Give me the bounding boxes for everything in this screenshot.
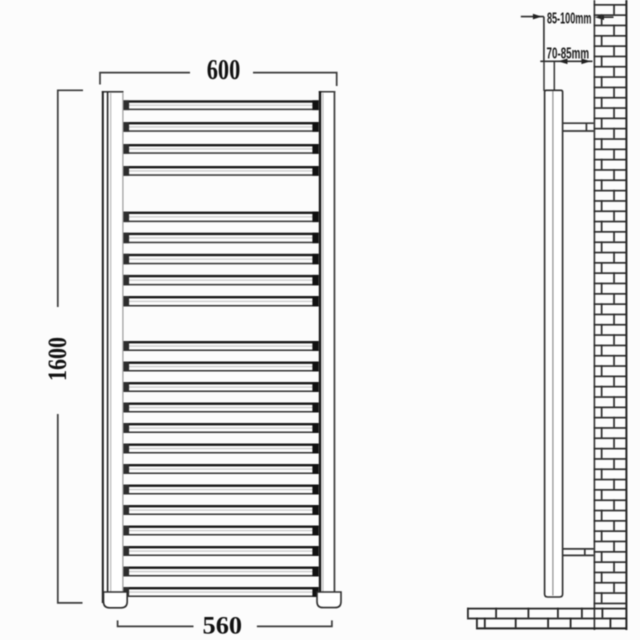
svg-text:600: 600	[207, 55, 241, 86]
svg-text:70-85mm: 70-85mm	[547, 45, 590, 62]
svg-text:1600: 1600	[43, 337, 72, 381]
svg-text:85-100mm: 85-100mm	[547, 10, 592, 27]
svg-text:560: 560	[203, 611, 243, 640]
